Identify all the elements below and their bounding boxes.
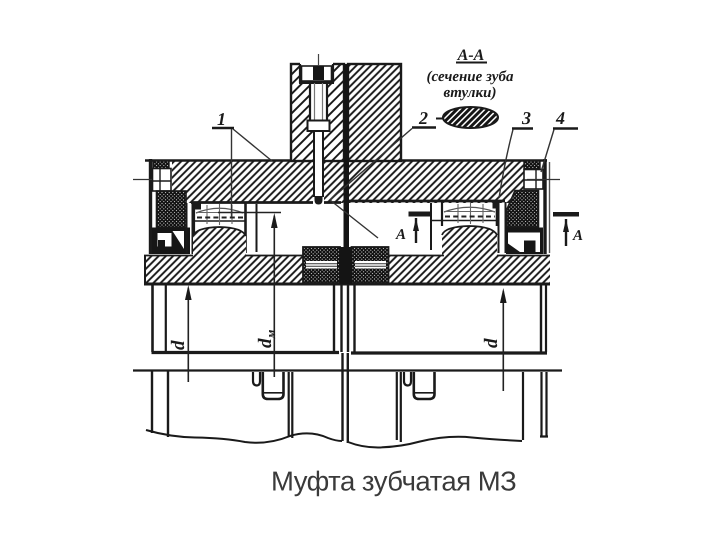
svg-text:А: А xyxy=(572,228,583,244)
svg-text:2: 2 xyxy=(418,108,428,128)
svg-text:3: 3 xyxy=(521,108,531,128)
svg-text:втулки): втулки) xyxy=(444,85,497,101)
svg-text:4: 4 xyxy=(555,108,565,128)
svg-text:d: d xyxy=(481,338,502,348)
svg-text:Муфта зубчатая МЗ: Муфта зубчатая МЗ xyxy=(271,466,516,497)
svg-text:d: d xyxy=(168,340,189,350)
svg-text:А: А xyxy=(395,227,406,243)
svg-text:1: 1 xyxy=(217,109,226,129)
svg-text:(сечение зуба: (сечение зуба xyxy=(427,69,514,85)
svg-text:А-А: А-А xyxy=(457,47,485,64)
